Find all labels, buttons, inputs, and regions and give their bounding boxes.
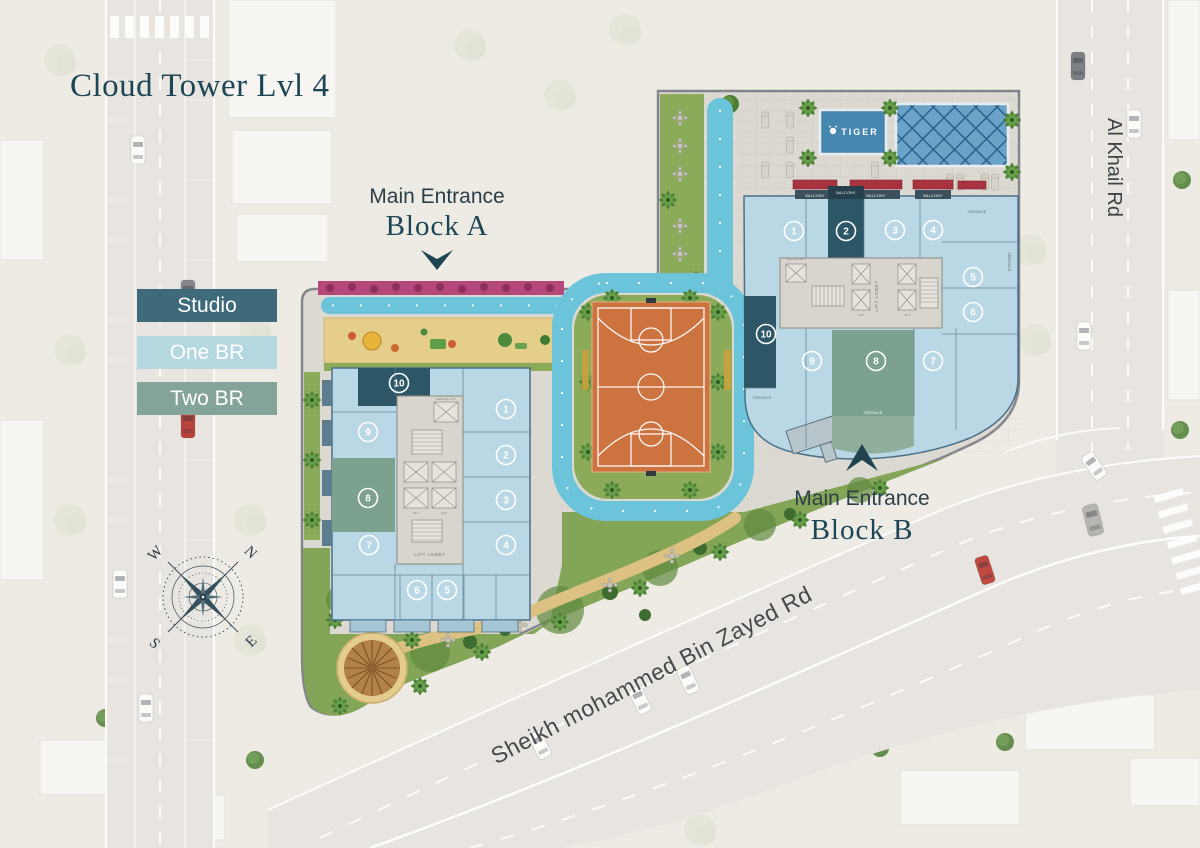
page-title: Cloud Tower Lvl 4: [70, 68, 329, 104]
unit-number: 2: [503, 451, 509, 462]
lift-label: LIFT: [904, 313, 910, 317]
car: [1127, 110, 1141, 138]
entrance-a-line1: Main Entrance: [369, 185, 504, 208]
lattice-pool: [896, 104, 1008, 166]
sports-area: [562, 283, 744, 511]
lift-lobby-label: LIFT LOBBY: [414, 552, 445, 557]
green-terrace: [832, 416, 914, 454]
balcony-label: BALCONY: [866, 194, 886, 198]
terrace-label: TERRACE: [967, 210, 987, 214]
service-lift-label: SERVICE LIFT: [436, 397, 456, 401]
unit-number: 5: [444, 586, 450, 597]
unit-number: 8: [365, 494, 371, 505]
basketball-hoop: [646, 471, 656, 476]
jogging-track-north: [707, 98, 733, 298]
tiger-pool: TIGER: [820, 110, 886, 154]
unit-number: 7: [930, 357, 936, 368]
terrace-label: TERRACE: [752, 396, 772, 400]
car: [131, 136, 145, 164]
balcony-label: BALCONY: [836, 191, 856, 195]
lift-label: LIFT: [413, 511, 419, 515]
balcony-label: BALCONY: [805, 194, 825, 198]
unit-number: 6: [414, 586, 420, 597]
lift-label: LIFT: [441, 511, 447, 515]
legend: Studio One BR Two BR: [137, 289, 277, 415]
legend-label-studio: Studio: [177, 294, 237, 317]
legend-label-two-br: Two BR: [170, 387, 244, 410]
unit-number: 10: [393, 379, 405, 390]
playground: [318, 281, 571, 371]
west-road: [105, 0, 215, 848]
basketball-court: [592, 298, 710, 476]
block-b-core: LIFT LIFT LIFT LOBBY SERVICE LIFT: [780, 257, 942, 328]
terrace-label: TERRACE: [863, 411, 883, 415]
unit-number: 3: [892, 226, 898, 237]
car: [1077, 322, 1091, 350]
unit-two-br: [832, 330, 914, 416]
entrance-b-line2: Block B: [811, 514, 914, 546]
block-b: LIFT LIFT LIFT LOBBY SERVICE LIFT BALCON…: [744, 186, 1018, 471]
lift-lobby-label: LIFT LOBBY: [874, 280, 879, 311]
block-a-core: SERVICE LIFT LIFT LIFT LIFT LOBBY: [397, 396, 463, 564]
north-connector: [659, 94, 739, 298]
unit-number: 9: [809, 357, 815, 368]
unit-number: 3: [503, 496, 509, 507]
unit-number: 8: [873, 357, 879, 368]
road-label-al-khail: Al Khail Rd: [1103, 118, 1125, 217]
site-plan-canvas: TIGER LIF: [0, 0, 1200, 848]
unit-two-br: [332, 458, 395, 532]
entrance-a-line2: Block A: [386, 210, 489, 242]
lift-label: LIFT: [858, 313, 864, 317]
legend-label-one-br: One BR: [170, 341, 245, 364]
basketball-hoop: [646, 298, 656, 303]
unit-number: 1: [503, 405, 509, 416]
service-lift-label: SERVICE LIFT: [786, 257, 806, 261]
unit-number: 4: [503, 541, 509, 552]
al-khail-road: [1056, 0, 1164, 478]
terrace-label: TERRACE: [1007, 252, 1011, 272]
pool-brand-label: TIGER: [841, 127, 879, 137]
unit-number: 10: [760, 330, 772, 341]
unit-number: 6: [970, 308, 976, 319]
unit-number: 2: [843, 227, 849, 238]
balcony-label: BALCONY: [923, 194, 943, 198]
unit-number: 5: [970, 273, 976, 284]
circular-deck: [337, 633, 407, 703]
entrance-b-line1: Main Entrance: [794, 487, 929, 510]
unit-number: 7: [366, 541, 372, 552]
car: [139, 694, 153, 722]
unit-number: 4: [930, 226, 936, 237]
unit-number: 1: [791, 227, 797, 238]
car: [113, 570, 127, 598]
block-a: SERVICE LIFT LIFT LIFT LIFT LOBBY 123456…: [322, 368, 530, 632]
car: [1071, 52, 1085, 80]
unit-number: 9: [365, 428, 371, 439]
